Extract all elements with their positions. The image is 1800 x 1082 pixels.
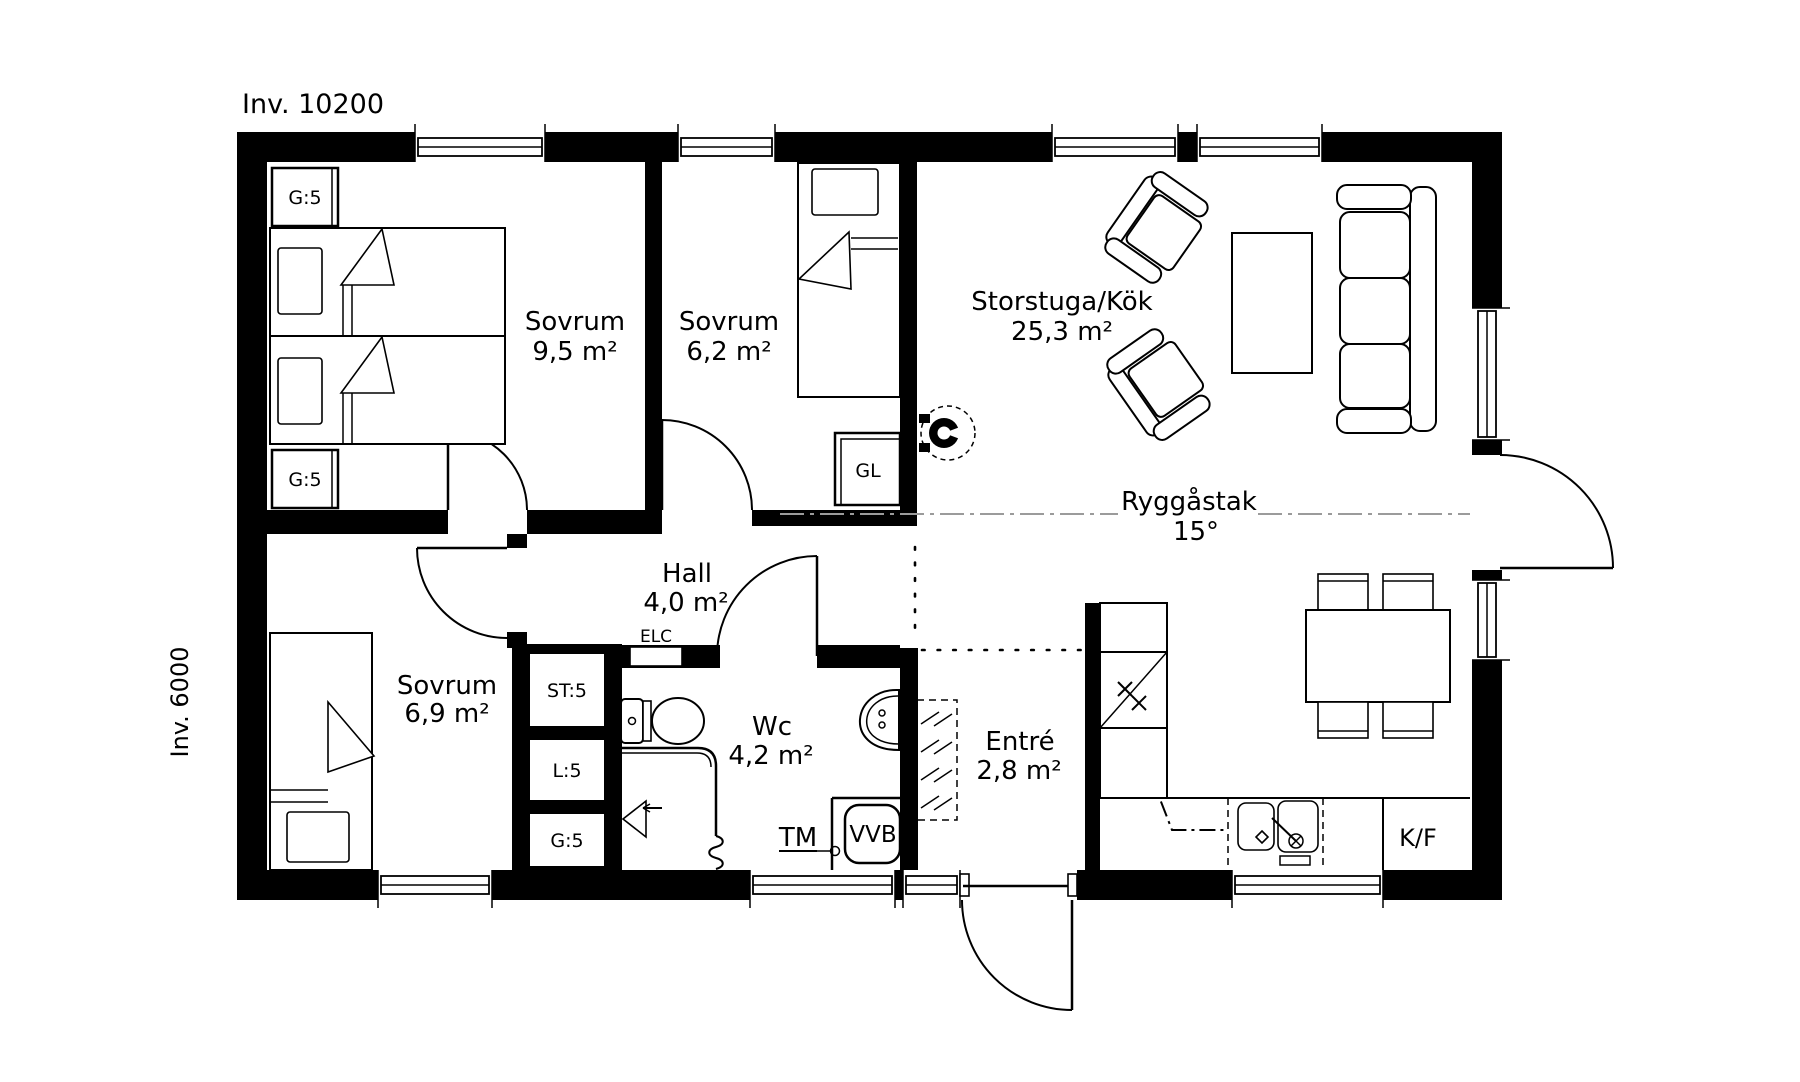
- window-icon: [1472, 308, 1510, 440]
- room-name: Sovrum: [397, 671, 497, 701]
- fridge-freezer-label: K/F: [1399, 824, 1437, 852]
- side-dimension-label: Inv. 6000: [166, 647, 194, 758]
- room-label-bedroom2: Sovrum 6,2 m²: [679, 307, 779, 367]
- toilet-icon: [621, 698, 704, 744]
- sink-icon: [1238, 801, 1318, 865]
- door-bedroom2: [662, 420, 752, 510]
- room-name: Storstuga/Kök: [971, 287, 1152, 317]
- room-name: Entré: [985, 727, 1054, 757]
- floor-plan: Inv. 10200 Inv. 6000 Sovrum 9,5 m² Sovru…: [0, 0, 1800, 1082]
- window-icon: [378, 870, 492, 908]
- dining-table-icon: [1306, 574, 1450, 738]
- water-heater-label: VVB: [849, 822, 896, 848]
- closet-st-label: ST:5: [547, 680, 587, 702]
- window-icon: [1232, 870, 1383, 908]
- electrical-label: ELC: [640, 627, 672, 647]
- bed-icon: [270, 633, 374, 870]
- window-icon: [1197, 124, 1322, 162]
- closet-l-label: L:5: [552, 760, 581, 782]
- shower-icon: [622, 748, 723, 869]
- closet-g-label: G:5: [550, 830, 583, 852]
- wardrobe-label: G:5: [288, 187, 321, 209]
- shower-valve-icon: [623, 801, 662, 837]
- room-name: Wc: [752, 712, 792, 742]
- room-area: 25,3 m²: [1011, 317, 1113, 347]
- armchair-icon: [1100, 323, 1217, 446]
- room-label-bedroom1: Sovrum 9,5 m²: [525, 307, 625, 367]
- coat-rack-icon: [917, 700, 957, 820]
- door-entrance: [960, 874, 1077, 1010]
- door-wc: [717, 556, 817, 656]
- room-label-living-kitchen: Storstuga/Kök 25,3 m²: [971, 287, 1152, 347]
- bed-icon: [798, 163, 900, 397]
- armchair-icon: [1098, 166, 1215, 289]
- room-area: 6,2 m²: [686, 337, 771, 367]
- room-name: Hall: [662, 559, 712, 589]
- window-icon: [750, 870, 895, 908]
- sofa-icon: [1337, 185, 1436, 433]
- room-area: 9,5 m²: [532, 337, 617, 367]
- washbasin-icon: [860, 690, 899, 750]
- room-area: 4,0 m²: [643, 588, 728, 618]
- electrical-cabinet-icon: [630, 647, 682, 666]
- room-label-wc: Wc 4,2 m²: [728, 712, 813, 771]
- ridge-name: Ryggåstak: [1121, 486, 1257, 517]
- wardrobe-label: G:5: [288, 469, 321, 491]
- room-label-bedroom3: Sovrum 6,9 m²: [397, 671, 497, 729]
- room-area: 4,2 m²: [728, 741, 813, 771]
- door-terrace: [1500, 455, 1613, 568]
- room-label-entrance: Entré 2,8 m²: [976, 727, 1061, 786]
- window-icon: [678, 124, 775, 162]
- ridge-pitch: 15°: [1173, 517, 1219, 547]
- cabinet-gl-label: GL: [855, 460, 881, 482]
- door-bedroom3: [417, 548, 507, 638]
- room-area: 2,8 m²: [976, 756, 1061, 786]
- window-icon: [1052, 124, 1178, 162]
- window-icon: [903, 870, 960, 908]
- kitchen-counter-icon: [1100, 603, 1167, 798]
- room-label-hall: Hall 4,0 m²: [643, 559, 728, 618]
- roof-ridge-label: Ryggåstak 15°: [1121, 486, 1257, 547]
- coffee-table-icon: [1232, 233, 1312, 373]
- window-icon: [415, 124, 545, 162]
- fireplace-icon: [919, 406, 975, 460]
- room-name: Sovrum: [525, 307, 625, 337]
- floor-plan-page: Inv. 10200 Inv. 6000 Sovrum 9,5 m² Sovru…: [0, 0, 1800, 1082]
- washing-machine-label: TM: [778, 823, 817, 853]
- window-icon: [1472, 580, 1510, 660]
- room-name: Sovrum: [679, 307, 779, 337]
- bed-icon: [270, 336, 505, 444]
- bed-icon: [270, 228, 505, 336]
- plan-title: Inv. 10200: [242, 89, 384, 120]
- room-area: 6,9 m²: [404, 699, 489, 729]
